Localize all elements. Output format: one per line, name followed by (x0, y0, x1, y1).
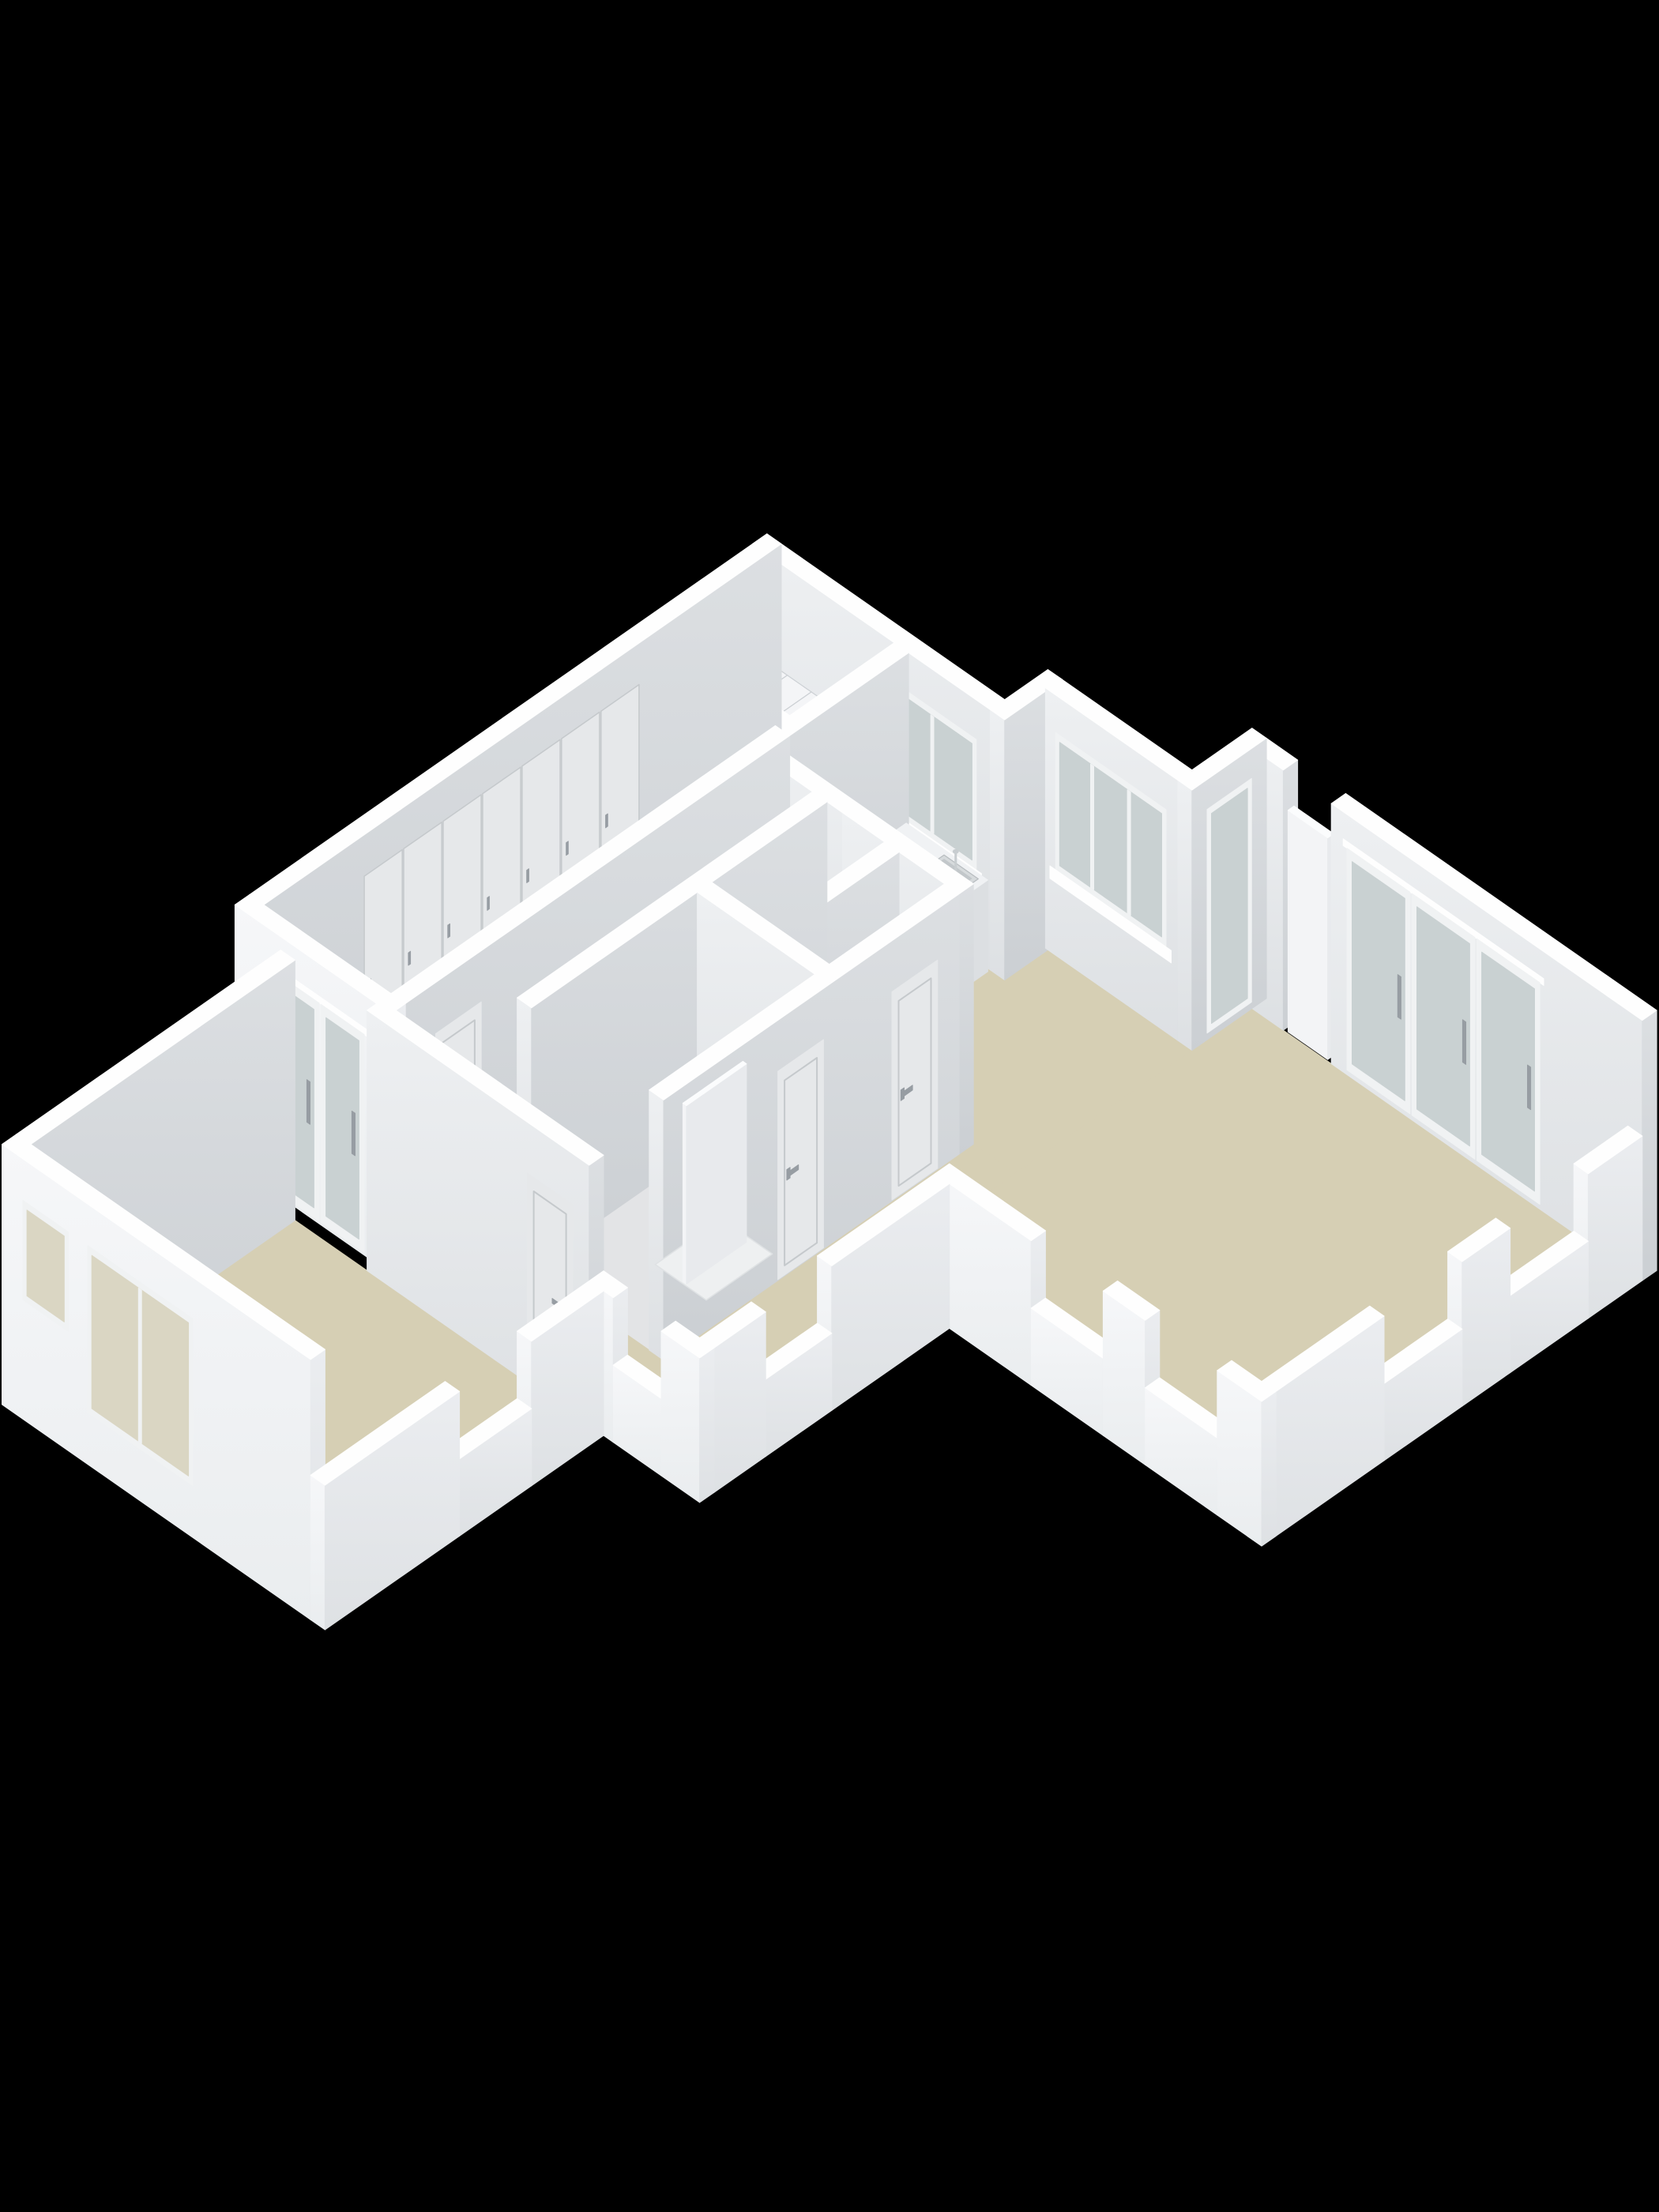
wall-step-wall-north (1178, 728, 1267, 1051)
wall-living-south-wall-c (1217, 1360, 1276, 1546)
interior-door (778, 1040, 824, 1280)
floorplan-canvas (0, 0, 1659, 2212)
wall-connector-south-wall-b (661, 1321, 714, 1503)
window (1207, 778, 1251, 1033)
floorplan-3d-render (0, 0, 1659, 2212)
interior-door (892, 960, 938, 1200)
open-door-leaf (1288, 806, 1334, 1059)
